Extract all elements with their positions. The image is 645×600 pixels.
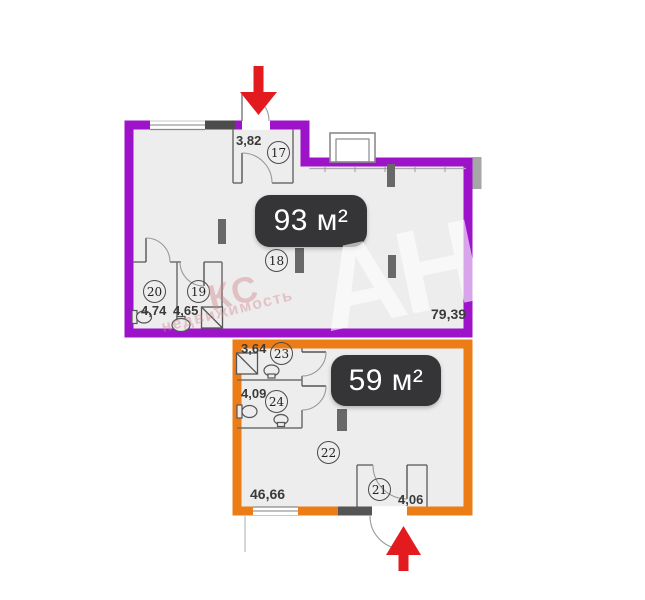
entry-arrow-up-icon xyxy=(386,526,421,571)
area-badge-93: 93 м² xyxy=(255,195,367,247)
room-circle-23: 23 xyxy=(270,342,293,365)
room-circle-24: 24 xyxy=(265,390,288,413)
floorplan-drawing xyxy=(0,0,645,600)
room-circle-22: 22 xyxy=(317,441,340,464)
dim-room-19: 4,65 xyxy=(173,303,198,318)
apartment-59-bottom-window xyxy=(253,507,298,516)
apartment-59-wall-sill xyxy=(338,507,372,516)
dim-room-21: 4,06 xyxy=(398,492,423,507)
dim-room-23: 3,64 xyxy=(241,341,266,356)
shaft-box xyxy=(330,133,375,162)
dim-room-17: 3,82 xyxy=(236,133,261,148)
shower-room-19 xyxy=(202,307,223,328)
apartment-93-entry-door-gap xyxy=(242,120,270,130)
room-circle-20: 20 xyxy=(143,280,166,303)
dim-apartment-93-main: 79,39 xyxy=(431,306,466,322)
room-circle-21: 21 xyxy=(368,478,391,501)
room-circle-19: 19 xyxy=(187,280,210,303)
floorplan-canvas: 93 м² 59 м² 17 18 20 19 23 24 22 21 3,82… xyxy=(0,0,645,600)
dim-apartment-59-main: 46,66 xyxy=(250,486,285,502)
area-badge-59: 59 м² xyxy=(331,355,441,406)
entry-arrow-down-icon xyxy=(240,66,277,115)
dim-room-20: 4,74 xyxy=(141,303,166,318)
toilet-room-24 xyxy=(237,405,257,418)
apartment-93-wall-lintel xyxy=(205,121,235,130)
dim-room-24: 4,09 xyxy=(241,386,266,401)
apartment-93-top-window xyxy=(150,121,205,130)
room-circle-18: 18 xyxy=(265,249,288,272)
exterior-duct xyxy=(473,157,482,189)
shower-room-23 xyxy=(237,353,258,374)
apartment-59-entry-door-gap xyxy=(372,506,407,516)
room-circle-17: 17 xyxy=(267,141,290,164)
